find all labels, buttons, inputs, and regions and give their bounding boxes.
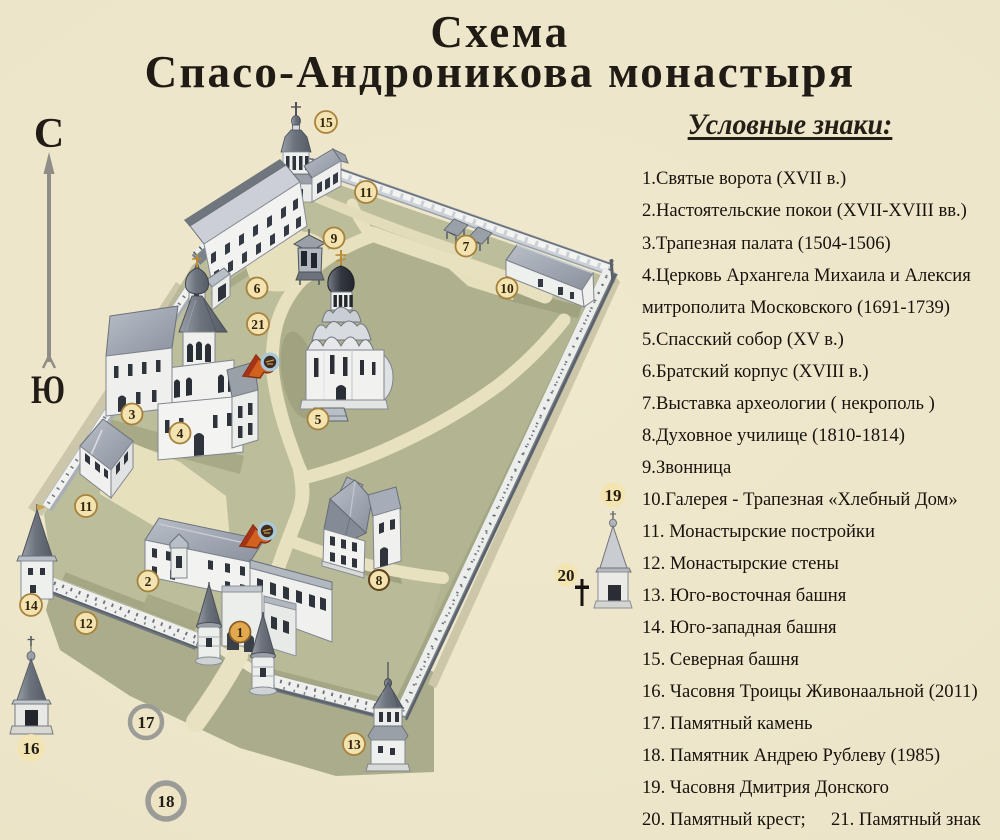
svg-text:С: С [34,111,64,157]
svg-text:Ю: Ю [31,367,65,412]
svg-text:16: 16 [23,739,40,758]
svg-text:2: 2 [145,574,152,589]
svg-text:9: 9 [331,231,338,246]
svg-text:11: 11 [80,499,93,514]
svg-text:1: 1 [237,625,244,640]
svg-text:5: 5 [315,412,322,427]
svg-text:3: 3 [129,407,136,422]
svg-text:4: 4 [177,426,184,441]
svg-text:11: 11 [360,185,373,200]
svg-text:20: 20 [558,566,575,585]
svg-text:13: 13 [347,737,361,752]
svg-text:10: 10 [500,281,514,296]
svg-text:6: 6 [254,281,261,296]
svg-text:21: 21 [251,317,265,332]
svg-text:12: 12 [79,616,93,631]
svg-text:18: 18 [158,792,175,811]
svg-text:17: 17 [138,713,156,732]
svg-text:7: 7 [463,239,470,254]
svg-text:14: 14 [24,598,38,613]
svg-text:19: 19 [605,486,622,505]
svg-text:8: 8 [376,573,383,588]
svg-text:15: 15 [319,115,333,130]
